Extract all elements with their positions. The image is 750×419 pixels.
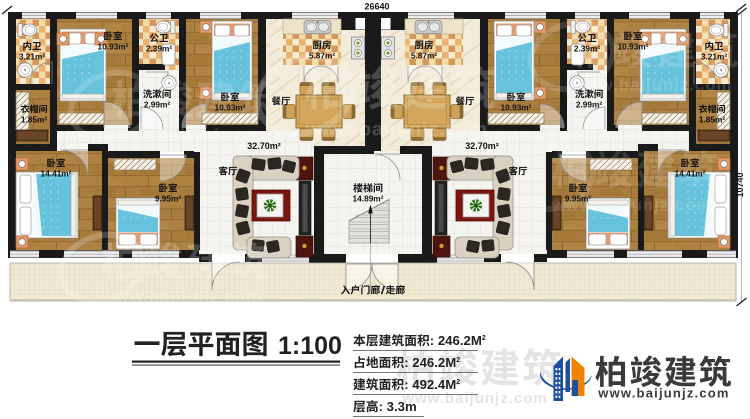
svg-text:: 3.3m: : 3.3m (379, 399, 417, 414)
svg-text:3.21m²: 3.21m² (19, 51, 46, 61)
svg-text:3.21m²: 3.21m² (701, 51, 728, 61)
svg-text:1.85m²: 1.85m² (699, 114, 726, 124)
svg-text:14.89m²: 14.89m² (353, 193, 384, 203)
svg-text:10.93m²: 10.93m² (215, 102, 246, 112)
svg-text:2.99m²: 2.99m² (144, 99, 171, 109)
svg-text:1.85m²: 1.85m² (21, 114, 48, 124)
svg-text:www.baijunjz.com: www.baijunjz.com (597, 386, 729, 401)
svg-text:www.baijunjz.com: www.baijunjz.com (101, 288, 263, 307)
svg-text:: 492.4M2: : 492.4M2 (404, 377, 460, 392)
svg-text:5.87m²: 5.87m² (411, 50, 438, 60)
svg-text:32.70m²: 32.70m² (465, 141, 499, 151)
svg-text:2.99m²: 2.99m² (576, 99, 603, 109)
svg-text:9.95m²: 9.95m² (565, 193, 592, 203)
svg-text:10740: 10740 (735, 172, 745, 197)
svg-text:www.baijunjz.com: www.baijunjz.com (401, 390, 547, 407)
svg-text:14.41m²: 14.41m² (675, 168, 706, 178)
svg-text:14.41m²: 14.41m² (41, 168, 72, 178)
svg-text:10.93m²: 10.93m² (501, 102, 532, 112)
svg-text:9.95m²: 9.95m² (155, 193, 182, 203)
svg-text:2.39m²: 2.39m² (146, 43, 173, 53)
svg-text:www.baijunjz.com: www.baijunjz.com (305, 119, 488, 140)
svg-text:26640: 26640 (364, 2, 389, 12)
svg-text:10.93m²: 10.93m² (98, 41, 129, 51)
svg-text:5.87m²: 5.87m² (309, 50, 336, 60)
svg-text:2.39m²: 2.39m² (574, 43, 601, 53)
svg-text:1:100: 1:100 (278, 332, 342, 360)
svg-text:: 246.2M2: : 246.2M2 (430, 333, 486, 348)
svg-text:10.93m²: 10.93m² (618, 41, 649, 51)
svg-text:: 246.2M2: : 246.2M2 (404, 355, 460, 370)
svg-text:32.70m²: 32.70m² (247, 141, 281, 151)
